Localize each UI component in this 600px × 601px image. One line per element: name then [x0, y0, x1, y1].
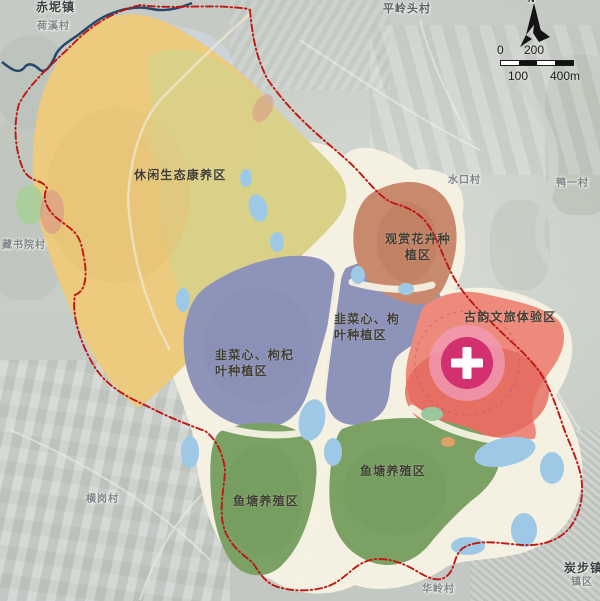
fishpond-texture-east [343, 445, 447, 535]
place-label-yayi: 鸭一村 [556, 178, 589, 191]
zone-label-line: 鱼塘养殖区 [360, 463, 426, 479]
fragment-green [16, 185, 44, 225]
planning-map-canvas: N 赤坭镇 荷溪村 平岭头村 水口村 鸭一村 藏书院村 横岗村 炭步镇 镇区 华… [0, 0, 600, 601]
zone-label-line: 古韵文旅体验区 [464, 309, 556, 325]
place-label-henggang: 横岗村 [86, 494, 119, 507]
scale-segment [501, 61, 519, 65]
zone-label-fishpond-west: 鱼塘养殖区 [233, 493, 299, 509]
leisure-texture2 [143, 82, 267, 178]
place-label-shuikou: 水口村 [448, 175, 481, 188]
zone-label-line: 叶种植区 [215, 363, 294, 379]
scale-segment [519, 61, 537, 65]
place-label-hexi-village: 荷溪村 [37, 21, 70, 34]
fragment-pink [40, 190, 64, 234]
place-label-chini-town: 赤坭镇 [36, 0, 75, 15]
zone-label-fishpond-east: 鱼塘养殖区 [360, 463, 426, 479]
scale-tick-100: 100 [508, 69, 528, 83]
zone-label-line: 观赏花卉种 [378, 231, 458, 247]
place-label-zhenqu: 镇区 [571, 577, 593, 590]
place-label-cangshuyuan: 藏书院村 [2, 240, 46, 253]
north-arrow-icon [520, 3, 550, 47]
planting-texture-west [203, 287, 313, 403]
zone-label-leisure: 休闲生态康养区 [134, 167, 226, 183]
zone-label-line: 韭菜心、枸杞 [215, 347, 294, 363]
zone-label-chive-east: 韭菜心、枸 叶种植区 [334, 311, 400, 343]
zone-label-flower: 观赏花卉种 植区 [378, 231, 458, 263]
north-label: N [528, 0, 535, 5]
zone-label-line: 植区 [378, 247, 458, 263]
zone-label-chive-west: 韭菜心、枸杞 叶种植区 [215, 347, 294, 379]
place-label-hualing: 华岭村 [422, 584, 455, 597]
place-label-pinglingtou: 平岭头村 [383, 3, 431, 17]
zone-label-line: 叶种植区 [334, 327, 400, 343]
scale-bar: 0 200 100 400m [492, 43, 596, 85]
place-label-tanbu-town: 炭步镇 [564, 561, 600, 576]
scale-tick-0: 0 [497, 43, 504, 57]
scale-tick-400m: 400m [550, 69, 580, 83]
scale-segment [555, 61, 573, 65]
scale-bar-segments [500, 60, 574, 66]
zone-label-line: 韭菜心、枸 [334, 311, 400, 327]
map-svg [0, 0, 600, 601]
zone-label-line: 鱼塘养殖区 [233, 493, 299, 509]
zone-label-heritage: 古韵文旅体验区 [464, 309, 556, 325]
zone-label-line: 休闲生态康养区 [134, 167, 226, 183]
scale-tick-200: 200 [524, 43, 544, 57]
scale-segment [537, 61, 555, 65]
